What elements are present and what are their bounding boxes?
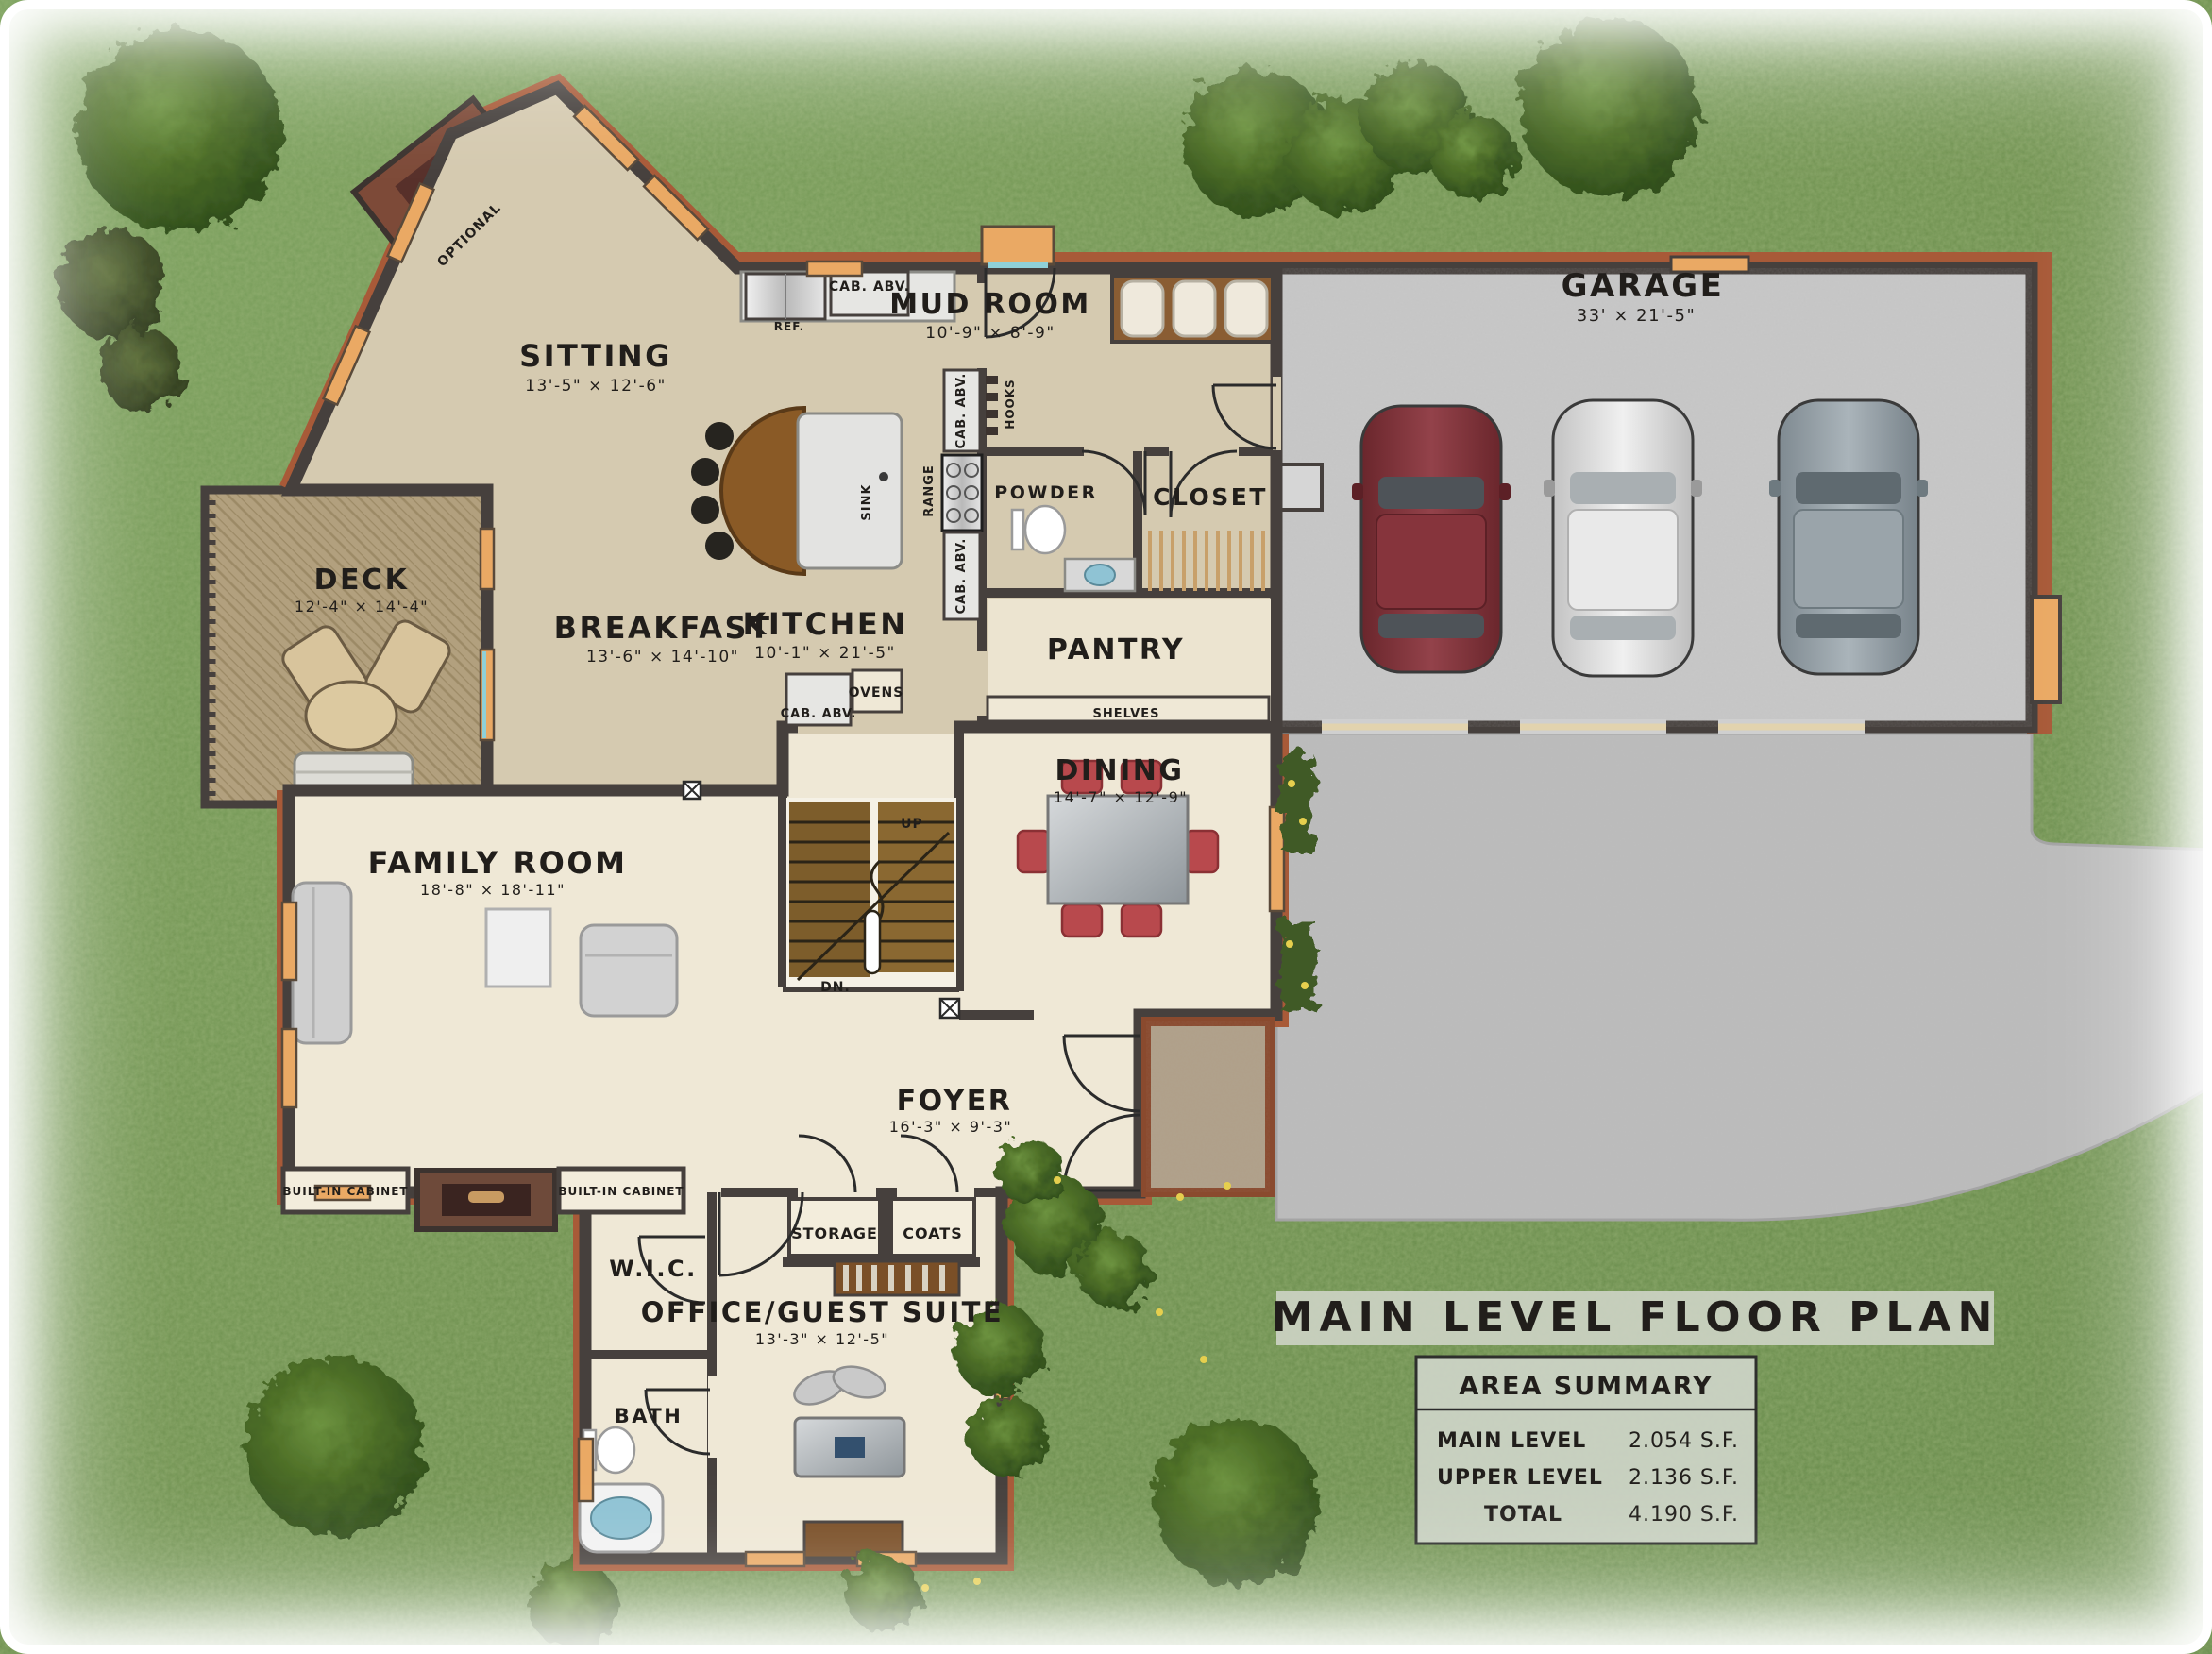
dims-office: 13'-3" × 12'-5": [755, 1330, 889, 1348]
dims-kitchen: 10'-1" × 21'-5": [754, 644, 896, 663]
label-shelves: SHELVES: [1093, 707, 1160, 721]
stairs-down-flight: [789, 802, 870, 977]
tree-icon: [100, 329, 183, 412]
powder-toilet-bowl: [1025, 506, 1065, 553]
dining-table: [1048, 796, 1188, 903]
tree-icon: [57, 228, 166, 338]
powder-sink-basin: [1085, 565, 1115, 585]
coffee-table: [486, 909, 550, 987]
label-ovens: OVENS: [849, 685, 904, 700]
label-garage: GARAGE: [1562, 267, 1725, 305]
label-sink: SINK: [860, 483, 874, 520]
deck-slider-glass: [482, 651, 486, 738]
tree-icon: [245, 1357, 425, 1536]
label-built-in-left: BUILT-IN CABINET: [282, 1185, 408, 1198]
fire-logs: [468, 1191, 504, 1203]
car-gray: [1769, 400, 1928, 674]
label-wic: W.I.C.: [609, 1256, 697, 1282]
staircase: [786, 798, 956, 987]
label-up: UP: [901, 817, 923, 832]
label-dn: DN.: [820, 980, 851, 995]
label-mud-room: MUD ROOM: [889, 288, 1091, 321]
label-sitting: SITTING: [519, 338, 672, 374]
laptop: [835, 1437, 865, 1458]
label-cab-abv-vert-bottom: CAB. ABV.: [954, 538, 969, 615]
planting-bed: [1280, 755, 1314, 850]
tree-icon: [1520, 19, 1699, 198]
deck-structure: [205, 490, 487, 805]
label-cab-abv: CAB. ABV.: [829, 279, 910, 295]
label-dining: DINING: [1055, 754, 1184, 787]
sofa-2: [581, 925, 677, 1016]
garage-side-window: [2032, 597, 2060, 702]
dims-foyer: 16'-3" × 9'-3": [889, 1118, 1013, 1136]
label-family-room: FAMILY ROOM: [368, 845, 628, 881]
books: [846, 1265, 942, 1291]
label-range: RANGE: [922, 464, 937, 517]
label-pantry: PANTRY: [1047, 633, 1185, 667]
dims-mud-room: 10'-9" × 8'-9": [925, 324, 1055, 343]
dims-sitting: 13'-5" × 12'-6": [525, 377, 667, 396]
label-cab-abv-vert-top: CAB. ABV.: [954, 373, 969, 449]
island-faucet: [879, 472, 888, 481]
bush-icon: [529, 1560, 619, 1650]
dims-garage: 33' × 21'-5": [1577, 306, 1696, 326]
cars: [1352, 400, 1928, 676]
label-breakfast: BREAKFAST: [554, 610, 772, 646]
label-storage: STORAGE: [791, 1224, 878, 1242]
garage-step: [1276, 464, 1322, 510]
dims-deck: 12'-4" × 14'-4": [295, 598, 429, 616]
mudroom-entry-glass: [988, 262, 1048, 268]
label-built-in-right: BUILT-IN CABINET: [558, 1185, 684, 1198]
tree-icon: [77, 28, 281, 232]
label-closet: CLOSET: [1153, 483, 1268, 511]
stair-newel: [865, 911, 880, 973]
summary-main-value: 2.054 S.F.: [1629, 1429, 1739, 1453]
bath-toilet-bowl: [597, 1427, 634, 1473]
bench-pillows: [1122, 281, 1267, 336]
mudroom-entry-stoop: [982, 227, 1054, 264]
label-cab-abv-2: CAB. ABV.: [781, 707, 857, 721]
summary-total-label: TOTAL: [1484, 1503, 1562, 1527]
floor-plan-svg: SITTING 13'-5" × 12'-6" MUD ROOM 10'-9" …: [0, 0, 2212, 1654]
summary-main-label: MAIN LEVEL: [1437, 1429, 1586, 1453]
deck-table: [306, 682, 397, 750]
label-ref: REF.: [774, 320, 804, 333]
car-silver: [1544, 400, 1702, 676]
summary-total-value: 4.190 S.F.: [1629, 1503, 1739, 1527]
area-summary-heading: AREA SUMMARY: [1459, 1372, 1713, 1401]
planting-bed: [1280, 920, 1314, 1010]
garage-doors: [1322, 719, 1865, 734]
powder-toilet-tank: [1012, 510, 1023, 549]
floor-plan-canvas: SITTING 13'-5" × 12'-6" MUD ROOM 10'-9" …: [0, 0, 2212, 1654]
sofa: [293, 883, 351, 1043]
dims-breakfast: 13'-6" × 14'-10": [586, 648, 739, 667]
bathtub-water: [591, 1497, 651, 1539]
label-hooks: HOOKS: [1004, 379, 1017, 429]
label-foyer: FOYER: [897, 1085, 1013, 1118]
label-powder: POWDER: [994, 482, 1097, 503]
plan-title: MAIN LEVEL FLOOR PLAN: [1272, 1293, 2000, 1342]
summary-upper-label: UPPER LEVEL: [1437, 1466, 1603, 1490]
label-deck: DECK: [314, 564, 410, 597]
dims-family-room: 18'-8" × 18'-11": [420, 881, 566, 899]
label-kitchen: KITCHEN: [743, 606, 908, 642]
label-office: OFFICE/GUEST SUITE: [641, 1296, 1005, 1328]
dims-dining: 14'-7" × 12'-9": [1054, 788, 1188, 806]
porch-texture: [1146, 1021, 1270, 1192]
opening-mudroom-garage: [1273, 377, 1281, 450]
label-coats: COATS: [903, 1224, 963, 1242]
bush-icon: [1430, 113, 1515, 198]
summary-upper-value: 2.136 S.F.: [1629, 1466, 1739, 1490]
island-counter: [798, 413, 902, 568]
tree-icon: [1154, 1418, 1320, 1584]
label-bath: BATH: [615, 1405, 684, 1427]
car-maroon: [1352, 406, 1511, 672]
